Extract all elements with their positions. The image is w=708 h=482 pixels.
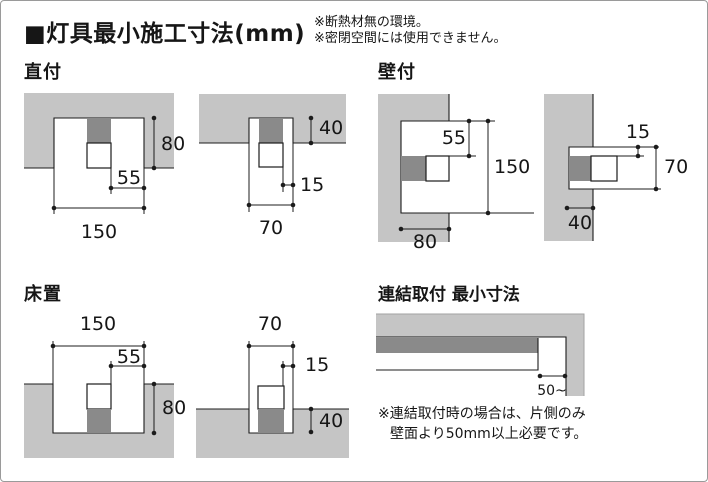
- dim-side-offset: 15: [281, 143, 324, 212]
- dim-height-label: 150: [494, 156, 530, 178]
- dim-top-offset: 15: [626, 121, 650, 158]
- note-enclosed-space: ※密閉空間には使用できません。: [314, 30, 507, 46]
- dim-dot: [636, 154, 641, 159]
- fixture-lens: [258, 386, 284, 409]
- dim-dot: [309, 407, 314, 412]
- dim-dot: [281, 364, 286, 369]
- fixture-lens: [87, 384, 111, 409]
- dim-width-label: 150: [81, 221, 117, 243]
- dim-width: [247, 344, 296, 349]
- dim-dot: [467, 119, 472, 124]
- dim-dot: [142, 364, 147, 369]
- fixture-housing: [87, 409, 111, 433]
- dim-height-label: 40: [319, 410, 343, 432]
- fixture-lens: [591, 156, 617, 181]
- dim-dot: [565, 206, 570, 211]
- linked-mount-note-line2: 壁面より50mm以上必要です。: [390, 426, 587, 442]
- installation-diagram: ■灯具最小施工寸法(mm) ※断熱材無の環境。 ※密閉空間には使用できません。 …: [1, 1, 708, 482]
- dim-dot: [142, 186, 147, 191]
- linked-mount-diagram: 50~ ※連結取付時の場合は、片側のみ 壁面より50mm以上必要です。: [376, 314, 587, 442]
- dim-dot: [291, 203, 296, 208]
- dim-top-offset: 55: [442, 119, 471, 159]
- dim-height: 70: [654, 145, 688, 192]
- dim-side-offset: 55: [109, 167, 147, 214]
- linked-mount-note-line1: ※連結取付時の場合は、片側のみ: [378, 406, 586, 422]
- dim-dot: [247, 203, 252, 208]
- dim-dot: [109, 364, 114, 369]
- dim-side-offset: 55: [109, 346, 147, 368]
- dim-dot: [109, 186, 114, 191]
- dim-offset-label: 55: [442, 127, 466, 149]
- section-label-direct-mount: 直付: [24, 61, 62, 83]
- dim-height-label: 80: [162, 397, 186, 419]
- dim-dot: [486, 119, 491, 124]
- dim-height-label: 40: [319, 117, 343, 139]
- dim-depth-label: 40: [568, 212, 592, 234]
- wall-mount-left-diagram: 55 150 80: [378, 94, 534, 253]
- dim-dot: [51, 344, 56, 349]
- dim-gap: 50~: [537, 374, 567, 399]
- section-label-wall-mount: 壁付: [378, 61, 416, 83]
- dim-dot: [142, 206, 147, 211]
- dim-dot: [142, 344, 147, 349]
- dim-dot: [309, 116, 314, 121]
- dim-dot: [486, 211, 491, 216]
- dim-offset-label: 15: [626, 121, 650, 143]
- dim-width-label: 70: [258, 313, 282, 335]
- wall-mount-right-diagram: 15 70 40: [544, 94, 688, 241]
- dim-dot: [291, 183, 296, 188]
- dim-dot: [281, 183, 286, 188]
- fixture-lens: [259, 143, 283, 167]
- dim-dot: [654, 187, 659, 192]
- note-insulation: ※断熱材無の環境。: [314, 15, 429, 30]
- dim-offset-label: 55: [117, 346, 141, 368]
- fixture-lens: [87, 143, 111, 168]
- dim-height-label: 70: [664, 156, 688, 178]
- dim-dot: [636, 145, 641, 150]
- dim-offset-label: 55: [117, 167, 141, 189]
- floor-mount-right-diagram: 70 15 40: [196, 313, 349, 458]
- fixture-housing: [376, 338, 538, 353]
- dim-depth-label: 80: [413, 231, 437, 253]
- dim-width-label: 150: [80, 313, 116, 335]
- dim-gap-label: 50~: [537, 383, 567, 399]
- dim-dot: [291, 344, 296, 349]
- dim-dot: [152, 116, 157, 121]
- dim-dot: [152, 166, 157, 171]
- fixture-housing: [259, 118, 283, 143]
- dim-offset-label: 15: [305, 354, 329, 376]
- dim-width-label: 70: [259, 217, 283, 239]
- dim-dot: [538, 374, 543, 379]
- floor-mount-left-diagram: 150 55 80: [24, 313, 186, 458]
- dim-dot: [152, 431, 157, 436]
- direct-mount-right-diagram: 40 15 70: [199, 94, 346, 239]
- dim-dot: [399, 227, 404, 232]
- dim-offset-label: 15: [300, 174, 324, 196]
- dim-dot: [309, 141, 314, 146]
- dim-dot: [563, 374, 568, 379]
- catalog-dimension-panel: ■灯具最小施工寸法(mm) ※断熱材無の環境。 ※密閉空間には使用できません。 …: [0, 0, 708, 482]
- fixture-housing: [569, 156, 591, 181]
- section-label-floor-mount: 床置: [24, 283, 62, 305]
- fixture-housing: [87, 118, 111, 143]
- dim-dot: [591, 206, 596, 211]
- direct-mount-left-diagram: 80 55 150: [24, 93, 185, 243]
- dim-dot: [447, 227, 452, 232]
- fixture-housing: [401, 156, 426, 181]
- fixture-housing: [258, 409, 284, 433]
- dim-height: 150: [486, 119, 531, 216]
- dim-height-label: 80: [161, 133, 185, 155]
- dim-dot: [247, 344, 252, 349]
- dim-dot: [52, 206, 57, 211]
- page-title: ■灯具最小施工寸法(mm): [24, 20, 305, 47]
- section-label-linked-mount: 連結取付 最小寸法: [378, 284, 520, 305]
- dim-dot: [654, 145, 659, 150]
- dim-dot: [467, 154, 472, 159]
- dim-dot: [291, 364, 296, 369]
- fixture-lens: [426, 156, 449, 181]
- dim-side-offset: 15: [281, 354, 329, 376]
- dim-dot: [309, 430, 314, 435]
- dim-dot: [152, 382, 157, 387]
